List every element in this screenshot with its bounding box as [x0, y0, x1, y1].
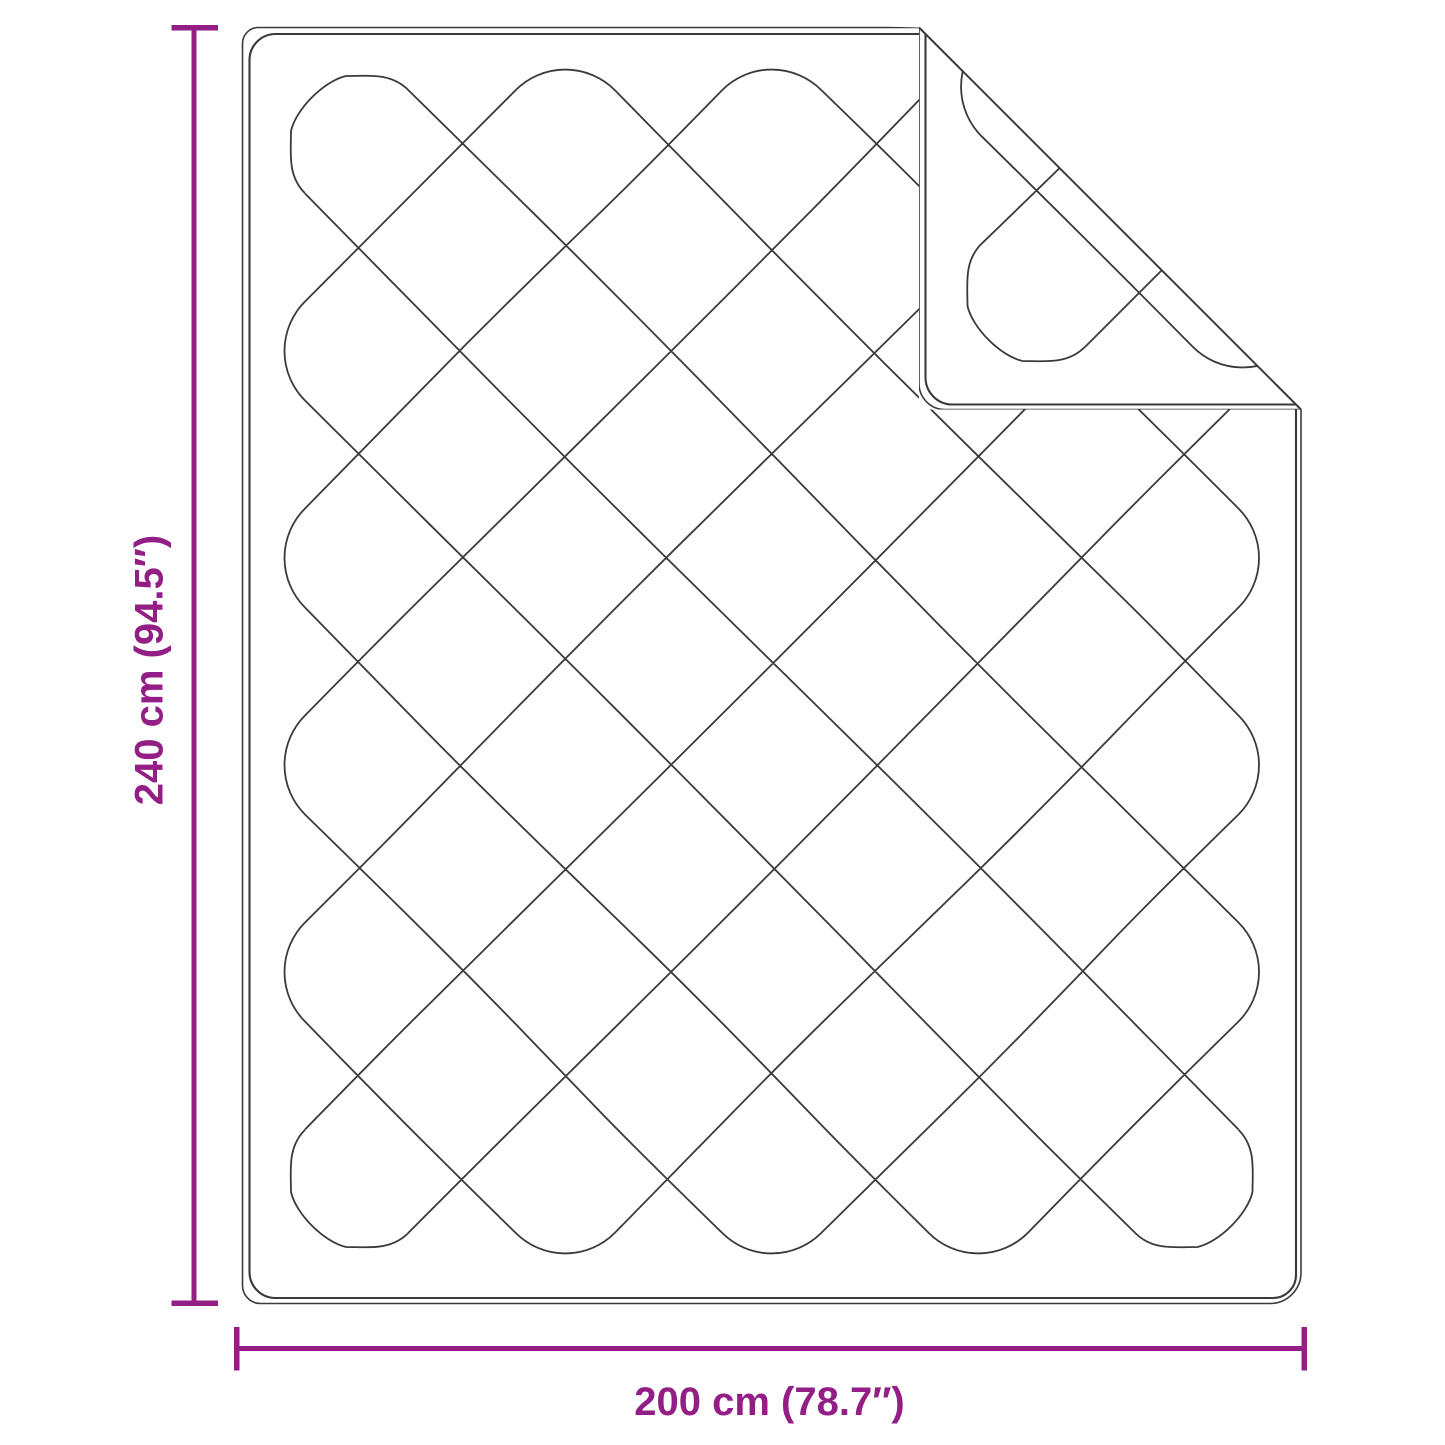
svg-text:240 cm (94.5″): 240 cm (94.5″) — [128, 535, 172, 805]
svg-text:200 cm (78.7″): 200 cm (78.7″) — [634, 1380, 904, 1424]
